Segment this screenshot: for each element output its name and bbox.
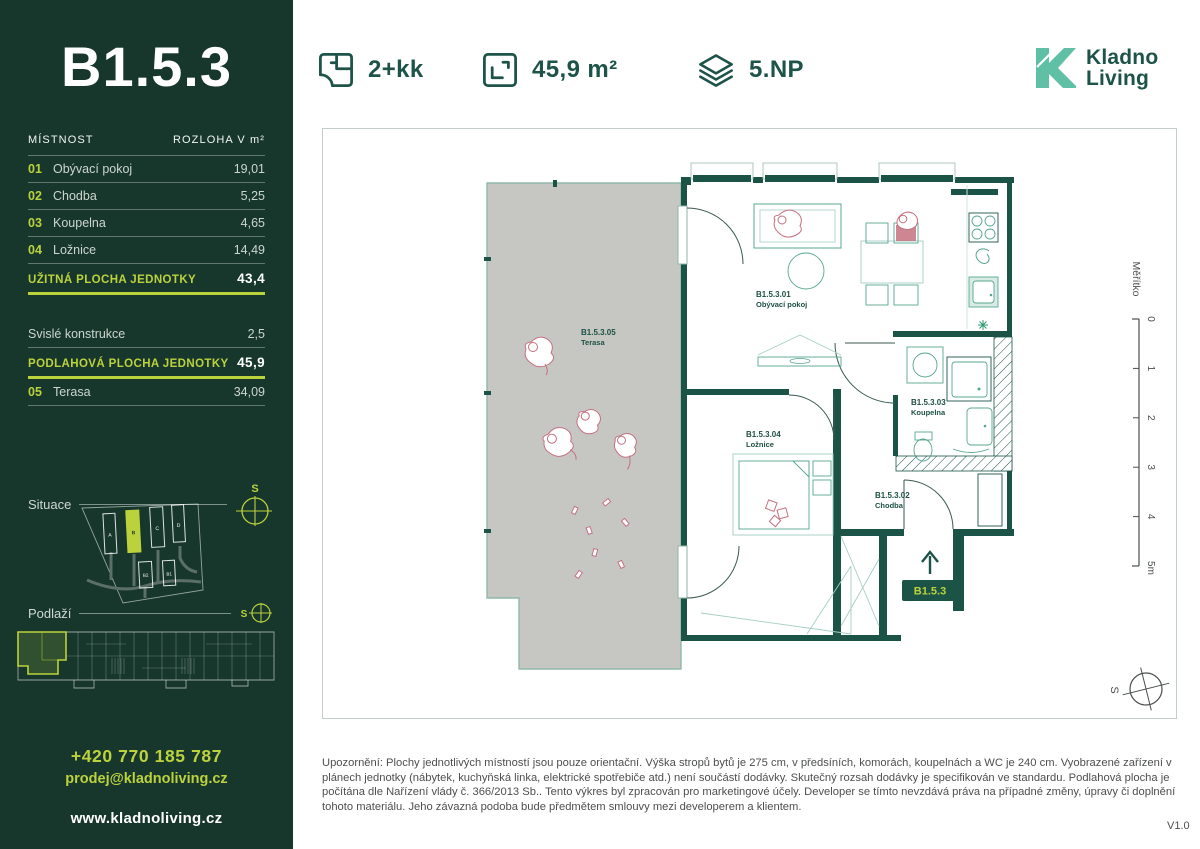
vertical-structures-row: Svislé konstrukce 2,5 [28,321,265,348]
brand-logo: Kladno Living [1036,47,1158,89]
entrance-arrow-icon [922,552,938,574]
col-room-label: MÍSTNOST [28,134,94,146]
room-area: 14,49 [234,243,265,257]
contact-email: prodej@kladnoliving.cz [0,771,293,787]
vertical-structures-value: 2,5 [248,327,265,341]
floor-overview-map [16,624,278,702]
logo-line1: Kladno [1086,47,1158,68]
contact-website: www.kladnoliving.cz [0,810,293,827]
scale-tick: 2 [1145,415,1156,421]
bedroom-furniture [701,454,879,634]
room-name: Chodba [53,189,97,203]
room-number: 04 [28,243,53,257]
building-label: B [131,530,135,536]
room-area: 19,01 [234,162,265,176]
room-label-name: Koupelna [911,408,946,417]
sidebar: B1.5.3 MÍSTNOST ROZLOHA V m² 01 Obývací … [0,0,293,849]
room-label-id: B1.5.3.01 [756,290,791,299]
room-name: Terasa [53,385,91,399]
vertical-structures-label: Svislé konstrukce [28,327,125,341]
usable-area-value: 43,4 [237,271,265,286]
unit-title: B1.5.3 [0,34,293,99]
usable-area-row: UŽITNÁ PLOCHA JEDNOTKY 43,4 [28,264,265,295]
scale-bar: Měřítko 0 1 2 3 4 5m [1130,261,1156,574]
scale-tick: 3 [1145,464,1156,470]
compass-icon: S [1108,662,1175,716]
disclaimer-text: Upozornění: Plochy jednotlivých místnost… [322,756,1180,814]
area-icon [482,52,518,88]
room-label-name: Chodba [875,501,904,510]
flat-sheet-page: B1.5.3 MÍSTNOST ROZLOHA V m² 01 Obývací … [0,0,1200,849]
room-label-id: B1.5.3.03 [911,398,946,407]
facade-windows [691,163,955,182]
room-label-name: Ložnice [746,440,774,449]
podlazi-label: Podlaží [28,606,71,621]
version-label: V1.0 [1167,820,1190,832]
sofa-person [774,210,801,237]
podlazi-header: Podlaží S [28,602,273,624]
compass-icon: S [235,481,273,527]
divider [79,613,231,614]
floor-plan-drawing: B1.5.3.01 Obývací pokoj B1.5.3.05 Terasa… [323,129,1176,718]
hatched-wall [896,456,1012,471]
scale-tick: 1 [1145,366,1156,372]
table-row: 03 Koupelna 4,65 [28,210,265,237]
room-label-id: B1.5.3.02 [875,491,910,500]
scale-label: Měřítko [1130,261,1142,296]
room-number: 01 [28,162,53,176]
layout-icon [318,52,354,88]
room-area: 34,09 [234,385,265,399]
site-map: A B C D B2 B1 [45,498,215,610]
building-label: C [155,526,159,532]
contact-phone: +420 770 185 787 [0,746,293,767]
room-label-name: Obývací pokoj [756,300,807,309]
floor-spec: 5.NP [697,52,804,88]
building-label: D [177,523,181,529]
bedroom-clothes [766,500,789,527]
building-label: A [108,532,112,538]
room-area: 4,65 [241,216,265,230]
col-area-label: ROZLOHA V m² [173,134,265,146]
site-buildings: A B C D B2 B1 [103,505,188,590]
room-name: Ložnice [53,243,96,257]
logo-mark [1036,48,1076,88]
building-label: B2 [143,573,149,578]
table-row: 04 Ložnice 14,49 [28,237,265,264]
chair-person [896,212,918,241]
entrance-badge: B1.5.3 [902,580,958,601]
layout-label: 2+kk [368,56,424,84]
compass-letter: S [1108,686,1120,693]
contact-block: +420 770 185 787 prodej@kladnoliving.cz … [0,746,293,827]
room-number: 03 [28,216,53,230]
floor-area-label: PODLAHOVÁ PLOCHA JEDNOTKY [28,358,229,370]
terrace-row: 05 Terasa 34,09 [28,379,265,406]
building-label: B1 [166,571,172,576]
floor-area-value: 45,9 [237,355,265,370]
logo-text: Kladno Living [1086,47,1158,89]
floor-area-row: PODLAHOVÁ PLOCHA JEDNOTKY 45,9 [28,348,265,379]
scale-tick: 5m [1145,561,1156,575]
compass-letter: S [241,609,248,620]
room-name: Obývací pokoj [53,162,132,176]
room-table: MÍSTNOST ROZLOHA V m² 01 Obývací pokoj 1… [28,134,265,406]
layout-spec: 2+kk [318,52,424,88]
table-row: 02 Chodba 5,25 [28,183,265,210]
usable-area-label: UŽITNÁ PLOCHA JEDNOTKY [28,274,196,286]
logo-line2: Living [1086,68,1158,89]
room-label-name: Terasa [581,338,605,347]
scale-tick: 4 [1145,514,1156,520]
area-label: 45,9 m² [532,56,618,84]
floor-plan-canvas: B1.5.3.01 Obývací pokoj B1.5.3.05 Terasa… [322,128,1177,719]
floor-icon [697,52,735,88]
table-row: 01 Obývací pokoj 19,01 [28,156,265,183]
room-label-id: B1.5.3.05 [581,328,616,337]
room-label-id: B1.5.3.04 [746,430,781,439]
room-area: 5,25 [241,189,265,203]
area-spec: 45,9 m² [482,52,618,88]
room-table-header: MÍSTNOST ROZLOHA V m² [28,134,265,156]
compass-icon: S [239,602,273,624]
kitchen-fixtures [967,185,998,330]
entrance-badge-label: B1.5.3 [914,586,946,598]
room-number: 05 [28,385,53,399]
room-number: 02 [28,189,53,203]
floor-label: 5.NP [749,56,804,84]
scale-tick: 0 [1145,316,1156,322]
room-name: Koupelna [53,216,106,230]
compass-letter: S [251,483,258,495]
bathroom-fixtures [907,347,1002,526]
hatched-wall [994,337,1012,471]
